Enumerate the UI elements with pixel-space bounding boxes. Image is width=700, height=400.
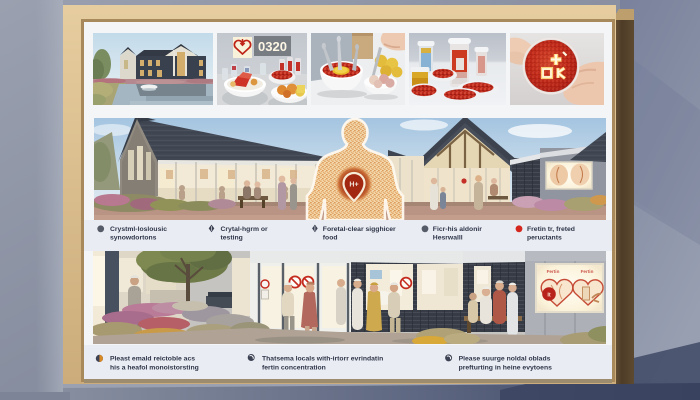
svg-text:Fretin tr, freted: Fretin tr, freted — [527, 226, 575, 233]
svg-text:Fertin: Fertin — [581, 269, 594, 274]
svg-text:Crytal-hgrm or: Crytal-hgrm or — [221, 226, 269, 233]
svg-text:synowdortons: synowdortons — [110, 235, 157, 242]
svg-text:It: It — [547, 293, 551, 299]
svg-text:Hesrwalll: Hesrwalll — [433, 235, 463, 242]
svg-text:peructants: peructants — [527, 235, 562, 242]
svg-text:his a heafol monoistorsting: his a heafol monoistorsting — [110, 365, 199, 372]
svg-text:food: food — [323, 235, 338, 242]
svg-text:Please suurge noldal oblads: Please suurge noldal oblads — [459, 356, 551, 363]
svg-text:0320: 0320 — [258, 39, 287, 54]
svg-text:fertin concentration: fertin concentration — [262, 365, 326, 372]
svg-text:Thatsema locals with-irtorr ev: Thatsema locals with-irtorr evrindatin — [262, 356, 383, 363]
svg-text:Foretal-clear sigghicer: Foretal-clear sigghicer — [323, 226, 396, 233]
svg-text:prefturting in heine evytoens: prefturting in heine evytoens — [459, 365, 553, 372]
svg-text:Fertin: Fertin — [547, 269, 560, 274]
svg-text:Pleast emald reictoble acs: Pleast emald reictoble acs — [110, 356, 195, 363]
svg-text:Crystml-loslousic: Crystml-loslousic — [110, 226, 167, 233]
svg-text:H+: H+ — [349, 182, 358, 189]
svg-text:testing: testing — [221, 235, 243, 242]
svg-text:Ficr-his aldonir: Ficr-his aldonir — [433, 226, 482, 233]
